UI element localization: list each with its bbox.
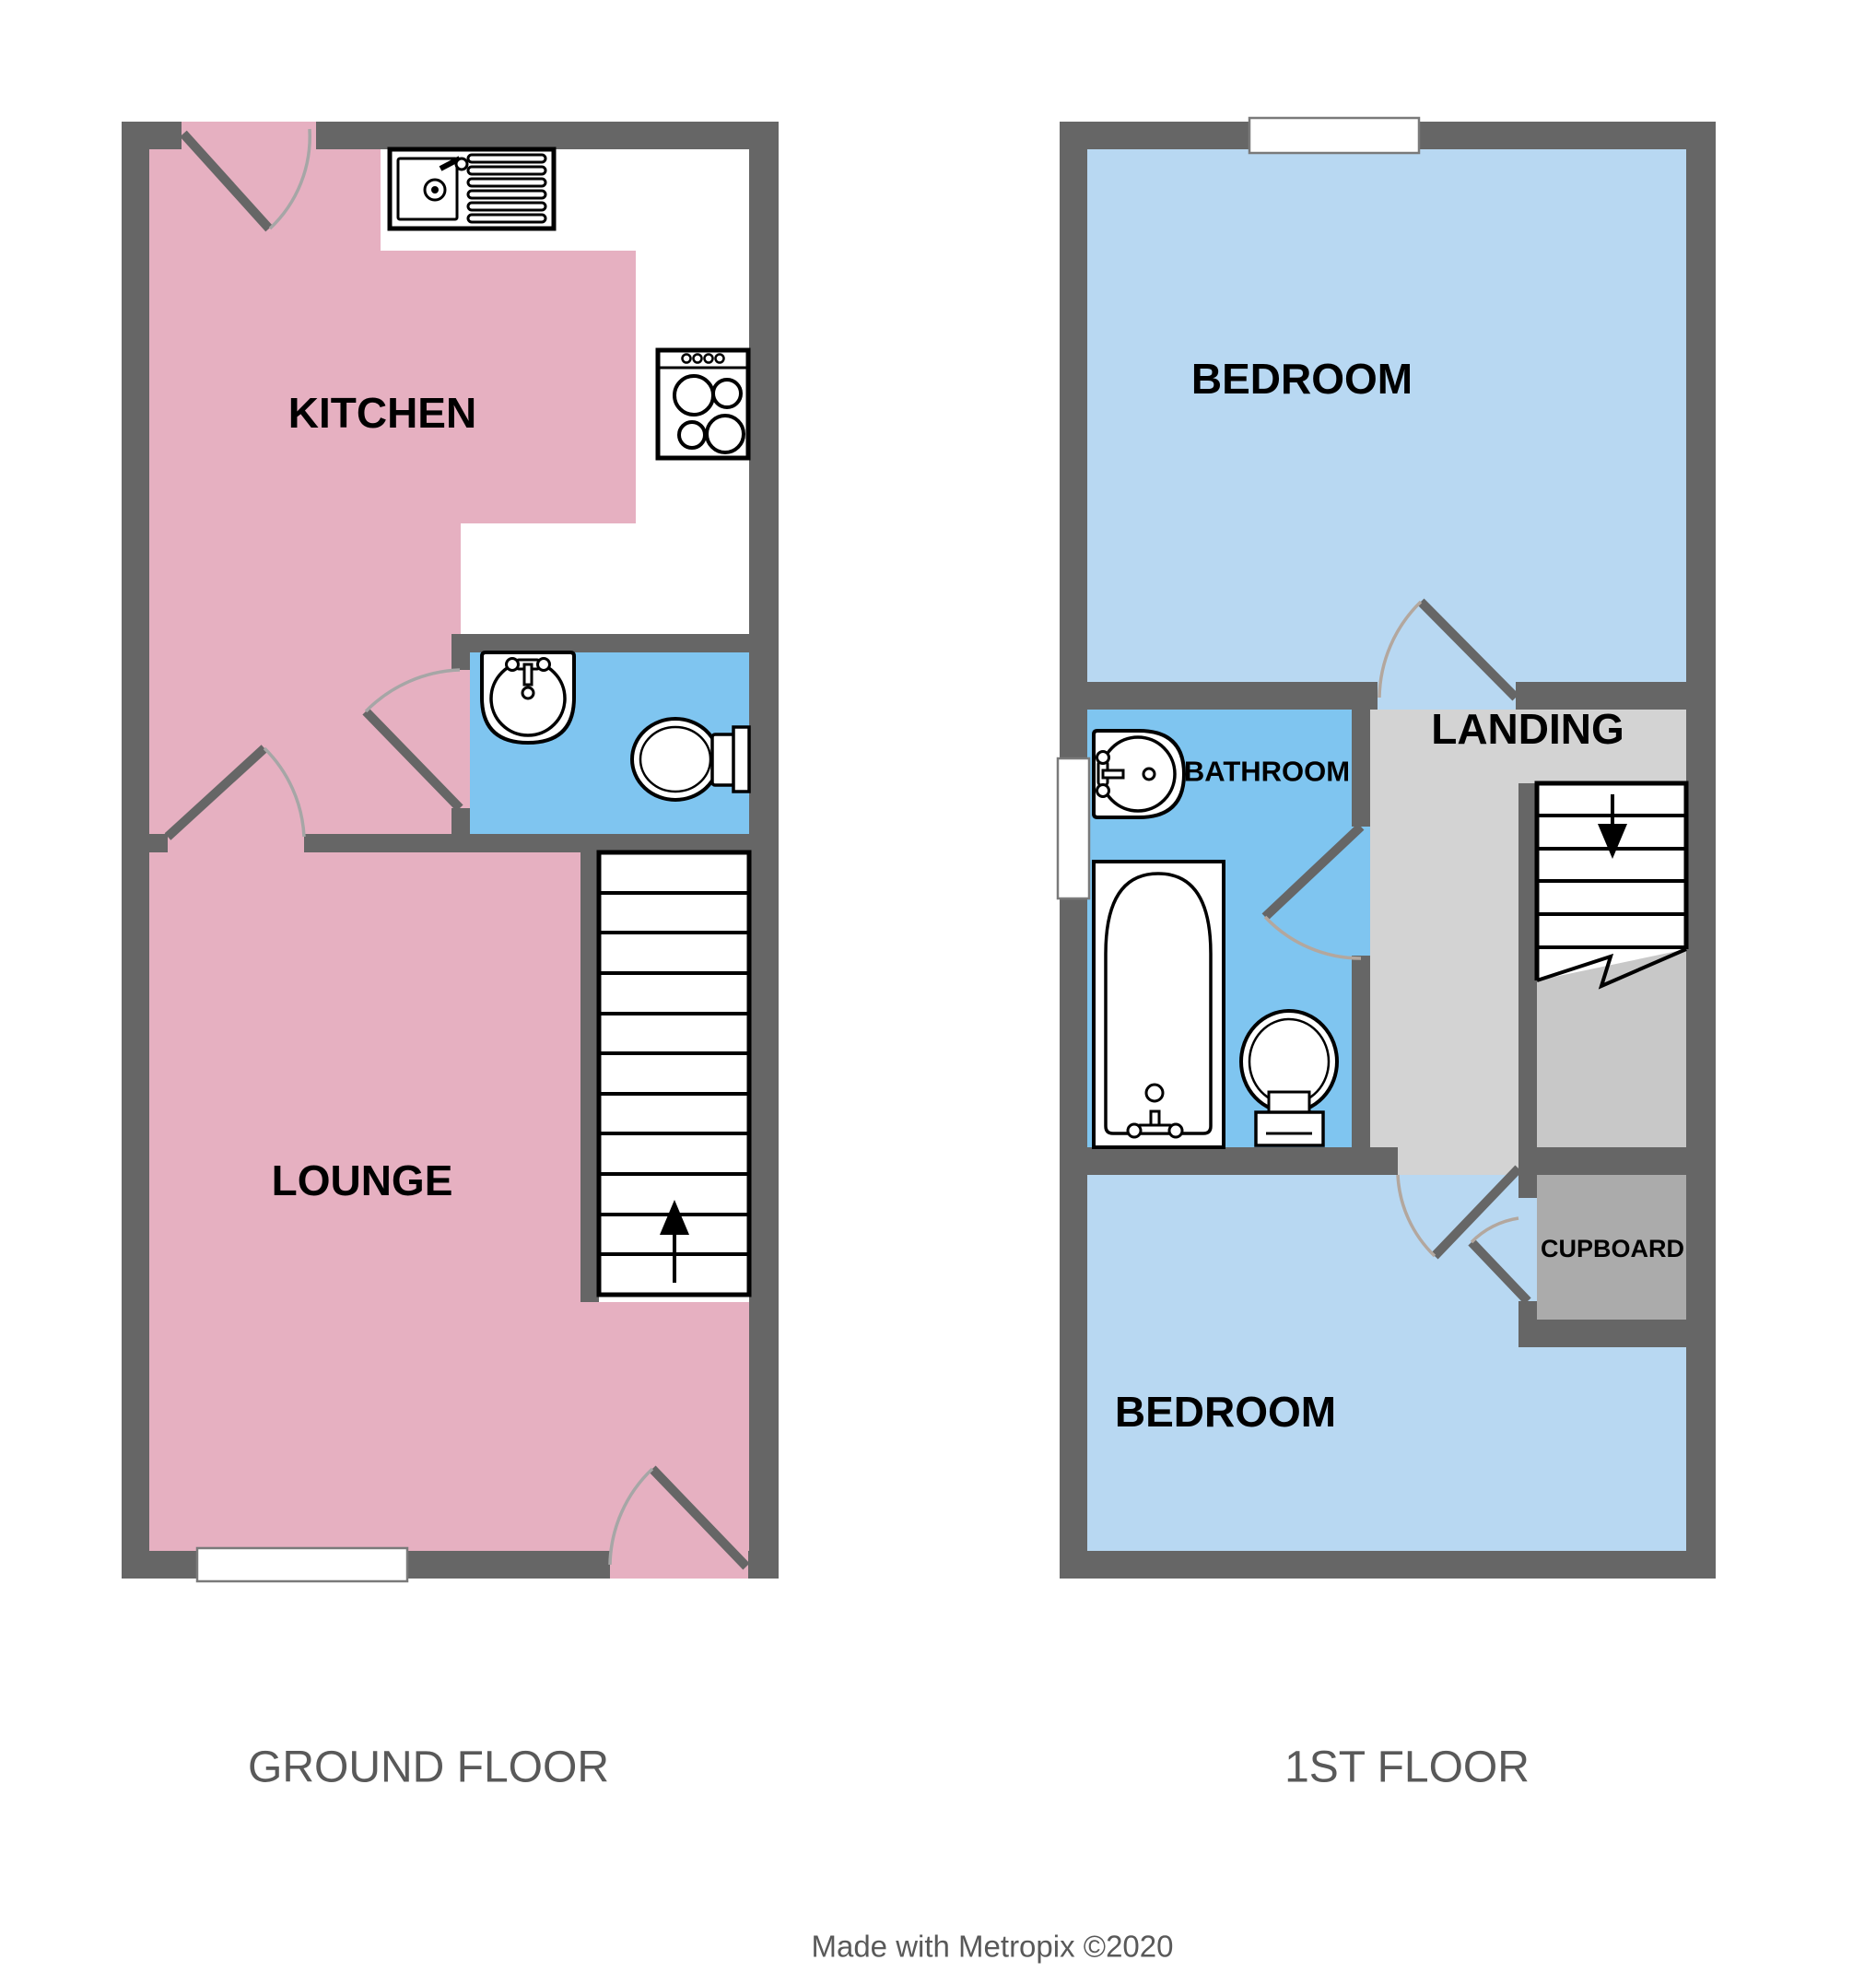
wall (1518, 1147, 1688, 1175)
bedroom2-label: BEDROOM (1115, 1388, 1336, 1436)
wall (1518, 783, 1537, 1147)
wall (149, 834, 168, 852)
kitchen-label: KITCHEN (288, 389, 476, 437)
wall (1518, 1175, 1537, 1198)
window (1249, 118, 1419, 153)
kitchen-sink-icon (390, 149, 554, 229)
staircase-up (599, 852, 749, 1295)
wc-basin-icon (482, 652, 574, 743)
wall (1352, 956, 1370, 1175)
wall (1352, 682, 1370, 827)
bath-icon (1094, 862, 1224, 1147)
floorplan-image: KITCHEN LOUNGE (0, 0, 1876, 1972)
cooker-hob-icon (658, 350, 748, 458)
ground-floor-plan: KITCHEN LOUNGE (122, 122, 779, 1581)
window (197, 1548, 407, 1581)
wall (748, 1551, 779, 1579)
landing-label: LANDING (1431, 705, 1624, 753)
wall (580, 852, 599, 1302)
wc-door-gap (451, 670, 470, 808)
cupboard-door-gap (1518, 1198, 1537, 1301)
first-floor-plan: BEDROOM BATHROOM LANDING CUPBOARD BEDROO… (1058, 118, 1716, 1579)
lounge-label: LOUNGE (272, 1156, 453, 1204)
wall (451, 634, 470, 670)
wall (1087, 1147, 1398, 1175)
wall (1060, 1551, 1716, 1579)
room-bedroom-1 (1087, 149, 1688, 682)
bathroom-basin-icon (1094, 731, 1184, 817)
window (1058, 758, 1089, 898)
ground-floor-caption: GROUND FLOOR (248, 1743, 609, 1792)
wall (451, 634, 749, 652)
cupboard-label: CUPBOARD (1541, 1235, 1684, 1262)
metropix-credit: Made with Metropix ©2020 (811, 1930, 1173, 1964)
wall (304, 834, 749, 852)
wall (749, 122, 779, 1579)
kitchen-door-gap (182, 122, 316, 149)
wall (122, 122, 149, 1579)
wall (451, 808, 470, 852)
front-door-gap (610, 1551, 748, 1579)
bedroom2-door-gap (1398, 1147, 1518, 1175)
wall (1518, 1320, 1688, 1347)
wall (316, 122, 779, 149)
wall (1087, 682, 1378, 710)
first-floor-caption: 1ST FLOOR (1284, 1743, 1530, 1792)
bedroom1-label: BEDROOM (1191, 355, 1413, 403)
bathroom-toilet-icon (1241, 1011, 1337, 1145)
bathroom-label: BATHROOM (1184, 756, 1350, 788)
wall (1686, 122, 1716, 1579)
bathroom-door-gap (1352, 827, 1370, 956)
lounge-door-gap (168, 834, 304, 852)
floorplan-svg: KITCHEN LOUNGE (0, 0, 1876, 1972)
